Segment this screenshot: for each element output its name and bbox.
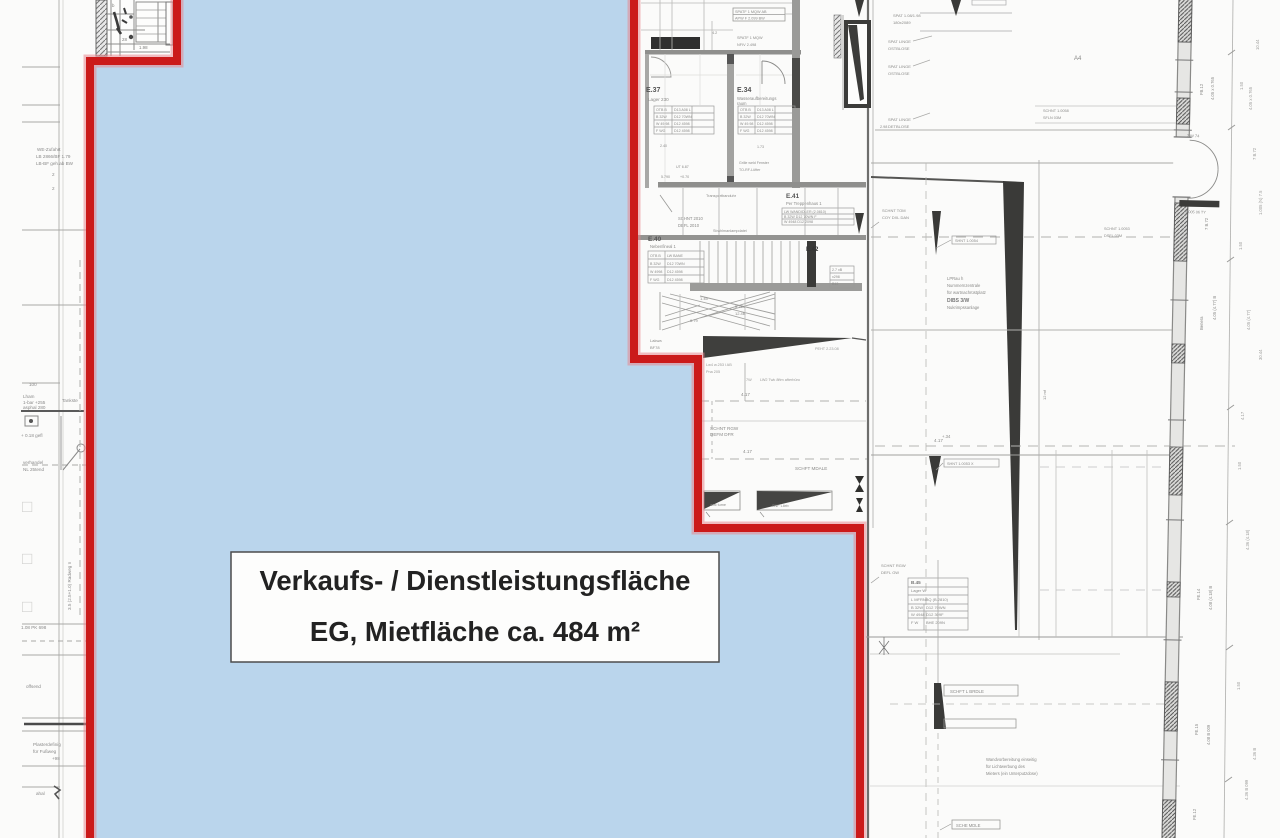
svg-text:NFIV 2.498: NFIV 2.498 bbox=[737, 43, 756, 47]
svg-text:1.73: 1.73 bbox=[757, 145, 764, 149]
svg-text:SPATF 1 MQW AB: SPATF 1 MQW AB bbox=[735, 10, 767, 14]
svg-text:OSTBLOSE: OSTBLOSE bbox=[888, 71, 910, 76]
svg-text:D12 4598: D12 4598 bbox=[674, 129, 690, 133]
svg-text:□: □ bbox=[22, 497, 32, 516]
svg-text:SPAT 1.08/1.98: SPAT 1.08/1.98 bbox=[893, 13, 921, 18]
svg-text:EG, Mietfläche ca. 484 m²: EG, Mietfläche ca. 484 m² bbox=[310, 616, 640, 647]
svg-text:D12 4598: D12 4598 bbox=[757, 122, 773, 126]
svg-text:2: 2 bbox=[52, 186, 55, 191]
svg-text:Nukrimpssanlage: Nukrimpssanlage bbox=[947, 305, 980, 310]
svg-text:1.98: 1.98 bbox=[139, 45, 148, 50]
svg-text:Lager W: Lager W bbox=[911, 588, 926, 593]
svg-text:SCHE MDLE: SCHE MDLE bbox=[956, 823, 981, 828]
svg-text:SCHNT 2010: SCHNT 2010 bbox=[678, 216, 703, 221]
svg-text:E.37: E.37 bbox=[646, 87, 661, 94]
svg-text:Pna 205: Pna 205 bbox=[706, 370, 720, 374]
svg-text:D12 70WN: D12 70WN bbox=[757, 115, 775, 119]
svg-text:FE.15: FE.15 bbox=[1194, 723, 1199, 735]
svg-text:Nebenfineal 1: Nebenfineal 1 bbox=[650, 244, 677, 249]
svg-text:7 B.72: 7 B.72 bbox=[1204, 217, 1209, 230]
svg-text:LPRau h: LPRau h bbox=[947, 276, 964, 281]
svg-text:+98: +98 bbox=[52, 756, 60, 761]
svg-text:Lakwa: Lakwa bbox=[650, 338, 662, 343]
svg-text:LW2 Twk 8ftm afterbüro: LW2 Twk 8ftm afterbüro bbox=[760, 378, 800, 382]
svg-text:für Lichtwerbung des: für Lichtwerbung des bbox=[986, 764, 1025, 769]
svg-text:+0.70: +0.70 bbox=[680, 175, 689, 179]
svg-text:D12 70WN: D12 70WN bbox=[667, 262, 685, 266]
svg-text:□: □ bbox=[22, 549, 32, 568]
svg-text:F WG: F WG bbox=[740, 129, 750, 133]
svg-text:Wandvorbereitung einseitig: Wandvorbereitung einseitig bbox=[986, 757, 1037, 762]
svg-text:DEFL 2010: DEFL 2010 bbox=[678, 223, 700, 228]
svg-text:1.50: 1.50 bbox=[1237, 461, 1242, 470]
svg-text:4.05 (4.77): 4.05 (4.77) bbox=[1246, 309, 1251, 330]
svg-text:7 B.72: 7 B.72 bbox=[1252, 147, 1257, 160]
svg-text:SCHNT RGW: SCHNT RGW bbox=[881, 563, 906, 568]
svg-text:7W: 7W bbox=[746, 378, 752, 382]
svg-text:DETBLOSE: DETBLOSE bbox=[888, 124, 910, 129]
svg-text:+.34: +.34 bbox=[942, 434, 951, 439]
svg-text:B 32W: B 32W bbox=[740, 115, 751, 119]
svg-text:28: 28 bbox=[122, 37, 127, 42]
svg-text:SPAT LINGE: SPAT LINGE bbox=[888, 64, 911, 69]
svg-text:D12 70WN: D12 70WN bbox=[674, 115, 692, 119]
svg-text:12.4B: 12.4B bbox=[735, 311, 746, 316]
svg-text:BHE 209N: BHE 209N bbox=[926, 620, 945, 625]
svg-text:DIBS 3/W: DIBS 3/W bbox=[947, 298, 970, 304]
svg-text:4.17: 4.17 bbox=[743, 449, 752, 454]
svg-text:APW F 2.099 BW: APW F 2.099 BW bbox=[735, 17, 765, 21]
svg-text:verhandel: verhandel bbox=[23, 460, 43, 465]
svg-text:1.45: 1.45 bbox=[700, 296, 709, 301]
svg-text:OSTBLOSE: OSTBLOSE bbox=[888, 46, 910, 51]
svg-text:FE.12: FE.12 bbox=[1192, 808, 1197, 820]
svg-text:2.98: 2.98 bbox=[880, 125, 887, 129]
svg-text:D13 A08 L: D13 A08 L bbox=[757, 108, 774, 112]
svg-text:W 49.98: W 49.98 bbox=[740, 122, 753, 126]
svg-text:30.44: 30.44 bbox=[1258, 349, 1263, 360]
svg-text:1.005 06 TY: 1.005 06 TY bbox=[1185, 210, 1206, 214]
svg-text:ahal: ahal bbox=[36, 791, 45, 796]
svg-text:FE.14: FE.14 bbox=[1196, 588, 1201, 600]
svg-text:4.05 x 0.765: 4.05 x 0.765 bbox=[1248, 86, 1253, 110]
svg-text:F WG: F WG bbox=[656, 129, 666, 133]
svg-text:2.40: 2.40 bbox=[660, 144, 667, 148]
svg-text:LB-BF geh.ab BW: LB-BF geh.ab BW bbox=[36, 161, 74, 166]
svg-text:COY DXL DAN: COY DXL DAN bbox=[882, 215, 909, 220]
svg-text:LB 2866/BF 1.79: LB 2866/BF 1.79 bbox=[36, 154, 71, 159]
svg-text:E.42: E.42 bbox=[806, 247, 819, 253]
svg-text:7 W 74: 7 W 74 bbox=[1187, 133, 1201, 138]
svg-text:4.36 (4.18): 4.36 (4.18) bbox=[1245, 529, 1250, 550]
svg-text:WE-Zufahrt: WE-Zufahrt bbox=[37, 147, 61, 152]
svg-text:1.005 (N) 7.5: 1.005 (N) 7.5 bbox=[1258, 190, 1263, 215]
svg-text:D12 309F: D12 309F bbox=[926, 612, 944, 617]
svg-text:4.08 (4.18) B: 4.08 (4.18) B bbox=[1208, 586, 1213, 610]
svg-text:Lham: Lham bbox=[23, 394, 35, 399]
svg-text:Tankste: Tankste bbox=[62, 398, 78, 403]
svg-text:2: 2 bbox=[52, 172, 55, 177]
svg-text:Lw4 w.253 l AB: Lw4 w.253 l AB bbox=[706, 363, 732, 367]
svg-text:Per Treppenhaus 1: Per Treppenhaus 1 bbox=[786, 201, 822, 206]
svg-text:4.05 (4.77) B: 4.05 (4.77) B bbox=[1212, 296, 1217, 320]
svg-text:Lager 230: Lager 230 bbox=[648, 97, 669, 102]
svg-text:für Fußweg: für Fußweg bbox=[33, 749, 57, 754]
svg-text:L MFRNBQ (B.2810): L MFRNBQ (B.2810) bbox=[911, 597, 949, 602]
svg-text:B 32W: B 32W bbox=[911, 605, 923, 610]
svg-text:1.50: 1.50 bbox=[1238, 241, 1243, 250]
svg-text:asphal 280: asphal 280 bbox=[23, 405, 46, 410]
svg-text:4.17: 4.17 bbox=[1240, 411, 1245, 420]
svg-text:DEFM DFR: DEFM DFR bbox=[710, 432, 734, 437]
svg-text:4.36 B: 4.36 B bbox=[1252, 748, 1257, 760]
svg-text:□: □ bbox=[22, 597, 32, 616]
svg-text:3.5 (2.5+1.0) Radweg n: 3.5 (2.5+1.0) Radweg n bbox=[67, 561, 72, 610]
svg-text:100: 100 bbox=[29, 382, 37, 387]
svg-text:E.34: E.34 bbox=[737, 87, 752, 94]
svg-text:FB.12: FB.12 bbox=[1199, 83, 1204, 95]
svg-text:SCHNT 1.0053: SCHNT 1.0053 bbox=[1104, 227, 1130, 231]
svg-text:W 4998: W 4998 bbox=[650, 270, 662, 274]
svg-text:F W: F W bbox=[911, 620, 919, 625]
svg-text:6.79: 6.79 bbox=[690, 318, 699, 323]
svg-text:OTB B: OTB B bbox=[656, 108, 667, 112]
svg-text:OTB B: OTB B bbox=[740, 108, 751, 112]
svg-text:Grille weld Fenster: Grille weld Fenster bbox=[739, 161, 770, 165]
svg-text:SCHNT RGW: SCHNT RGW bbox=[710, 426, 739, 431]
svg-text:1.50: 1.50 bbox=[1239, 81, 1244, 90]
svg-text:Plasterdefinig: Plasterdefinig bbox=[33, 742, 61, 747]
svg-text:B12: B12 bbox=[832, 282, 838, 286]
svg-text:W 4948: W 4948 bbox=[911, 612, 926, 617]
svg-text:5.790: 5.790 bbox=[661, 175, 670, 179]
svg-text:Nummernzentrale: Nummernzentrale bbox=[947, 283, 981, 288]
svg-text:Mieters (ein Unterputzdose): Mieters (ein Unterputzdose) bbox=[986, 771, 1038, 776]
svg-text:OTB B: OTB B bbox=[650, 254, 661, 258]
svg-text:SCHFT MDALE: SCHFT MDALE bbox=[795, 466, 827, 471]
svg-text:PEHT 2.23.08: PEHT 2.23.08 bbox=[815, 347, 839, 351]
svg-text:B 32W D12 70WN F: B 32W D12 70WN F bbox=[784, 215, 817, 219]
svg-text:SPAT LINGE: SPAT LINGE bbox=[888, 39, 911, 44]
svg-text:SPATF 1 MQW: SPATF 1 MQW bbox=[737, 36, 763, 40]
svg-text:NL 25tend: NL 25tend bbox=[23, 467, 44, 472]
svg-text:1.50: 1.50 bbox=[1236, 681, 1241, 690]
svg-text:A4: A4 bbox=[1074, 56, 1082, 62]
svg-text:B 32W: B 32W bbox=[650, 262, 661, 266]
svg-text:SHNT 1.0054: SHNT 1.0054 bbox=[955, 239, 978, 243]
svg-text:2.7 xB: 2.7 xB bbox=[832, 268, 843, 272]
svg-text:SCHFT L BRDLE: SCHFT L BRDLE bbox=[950, 689, 984, 694]
svg-text:180x2089: 180x2089 bbox=[893, 20, 911, 25]
svg-text:D12 4598: D12 4598 bbox=[667, 270, 683, 274]
svg-text:W 49.98: W 49.98 bbox=[656, 122, 669, 126]
svg-text:D12 4598: D12 4598 bbox=[757, 129, 773, 133]
svg-text:B 32W: B 32W bbox=[656, 115, 667, 119]
svg-text:D12 4598: D12 4598 bbox=[667, 278, 683, 282]
svg-text:raum: raum bbox=[737, 101, 747, 106]
svg-text:5.78s: 5.78s bbox=[735, 304, 745, 309]
svg-text:Transportbanduhr: Transportbanduhr bbox=[706, 194, 737, 198]
svg-text:x298: x298 bbox=[832, 275, 840, 279]
svg-text:12 mf: 12 mf bbox=[1042, 389, 1047, 400]
svg-text:D13 A08 L: D13 A08 L bbox=[674, 108, 691, 112]
svg-text:F WG: F WG bbox=[650, 278, 660, 282]
svg-text:DSFL 03M: DSFL 03M bbox=[1104, 234, 1122, 238]
svg-text:BF78: BF78 bbox=[650, 345, 660, 350]
svg-text:SFLN 03M: SFLN 03M bbox=[1043, 116, 1061, 120]
svg-text:D12 4598: D12 4598 bbox=[674, 122, 690, 126]
svg-text:SCHNT TOM: SCHNT TOM bbox=[882, 208, 906, 213]
svg-text:D12 70WN: D12 70WN bbox=[926, 605, 946, 610]
svg-text:TO-RF-Lüfter: TO-RF-Lüfter bbox=[739, 168, 761, 172]
svg-text:für wartnachrüstplatz: für wartnachrüstplatz bbox=[947, 290, 986, 295]
svg-text:arat tume: arat tume bbox=[710, 503, 726, 507]
svg-text:W 4948 D12 2098: W 4948 D12 2098 bbox=[784, 220, 813, 224]
svg-text:10.44: 10.44 bbox=[1255, 39, 1260, 50]
svg-text:4.17: 4.17 bbox=[741, 392, 750, 397]
svg-text:DEFL GW: DEFL GW bbox=[881, 570, 899, 575]
svg-text:SCHNT 1.0058: SCHNT 1.0058 bbox=[1043, 109, 1069, 113]
svg-text:Verkaufs- / Dienstleistungsflä: Verkaufs- / Dienstleistungsfläche bbox=[260, 565, 691, 596]
svg-text:Benera: Benera bbox=[1199, 316, 1204, 330]
svg-text:LW BANE: LW BANE bbox=[667, 254, 684, 258]
svg-text:+ 0.18 gefl: + 0.18 gefl bbox=[21, 433, 43, 438]
svg-text:SHNT 1.0053 X: SHNT 1.0053 X bbox=[947, 462, 974, 466]
svg-text:SPAT LINGE: SPAT LINGE bbox=[888, 117, 911, 122]
svg-text:SNF Lileb: SNF Lileb bbox=[772, 504, 789, 508]
svg-text:4.2: 4.2 bbox=[712, 31, 717, 35]
svg-text:Strahlmanlampdatei: Strahlmanlampdatei bbox=[713, 229, 747, 233]
svg-text:1.08 PK 698: 1.08 PK 698 bbox=[21, 625, 47, 630]
svg-text:offsend: offsend bbox=[26, 684, 41, 689]
svg-text:4.05 x 0.765: 4.05 x 0.765 bbox=[1210, 76, 1215, 100]
svg-text:4.36 B 099: 4.36 B 099 bbox=[1244, 779, 1249, 800]
svg-text:E.41: E.41 bbox=[786, 193, 800, 200]
svg-text:4.08 B 009: 4.08 B 009 bbox=[1206, 724, 1211, 745]
svg-text:B.45: B.45 bbox=[911, 580, 921, 585]
svg-text:UT 6.87: UT 6.87 bbox=[676, 165, 689, 169]
